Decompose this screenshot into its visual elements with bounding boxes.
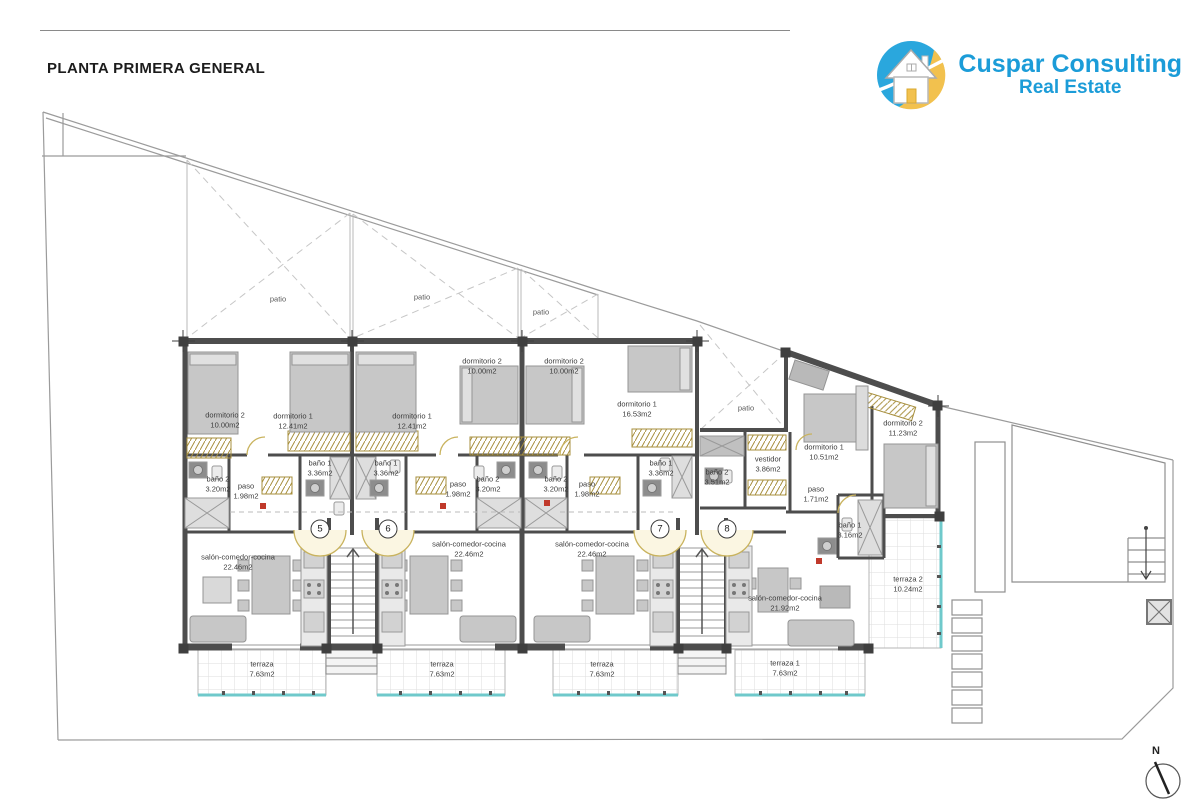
site-features <box>952 425 1171 723</box>
north-arrow-icon <box>1138 745 1190 800</box>
floor-plan-drawing <box>0 0 1200 800</box>
north-arrow: N <box>1138 745 1190 800</box>
north-label: N <box>1152 745 1160 757</box>
floor-plan-page: PLANTA PRIMERA GENERAL Cuspar Consulting… <box>0 0 1200 800</box>
